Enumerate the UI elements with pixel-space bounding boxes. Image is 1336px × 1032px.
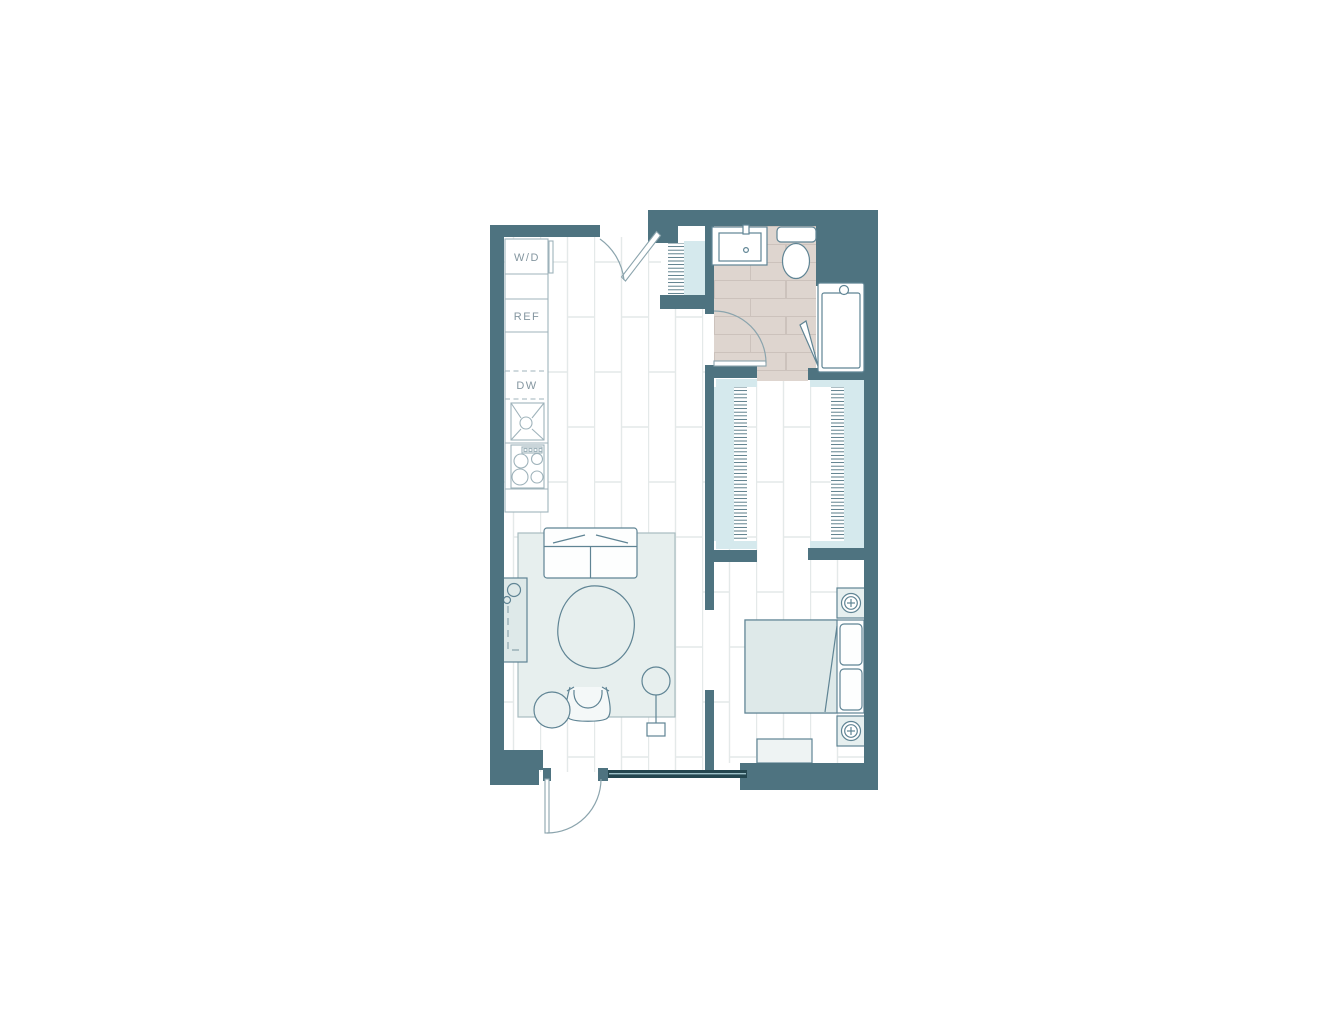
pillow xyxy=(840,669,862,710)
wall-closet-bottom-right xyxy=(808,548,864,560)
nightstand-top xyxy=(837,588,865,618)
closet-rod-left xyxy=(714,387,734,541)
entry-door-leaf xyxy=(545,779,549,833)
entry-door-swing-arc xyxy=(547,779,601,833)
toilet-bowl xyxy=(783,244,810,279)
sink-drain-icon xyxy=(520,417,532,429)
side-table xyxy=(534,692,570,728)
burner-icon xyxy=(532,454,543,465)
nightstand-bottom xyxy=(837,716,865,746)
floor-plan-canvas: W/D REF DW xyxy=(0,0,1336,1032)
media-console xyxy=(502,578,527,662)
window-band xyxy=(608,770,747,778)
window-glass-line xyxy=(609,773,746,774)
living-room xyxy=(502,528,675,736)
wall-top-right xyxy=(648,210,878,226)
refrigerator-label: REF xyxy=(514,311,541,323)
wall-corner-block xyxy=(490,750,543,770)
sofa xyxy=(544,528,637,578)
wall-bath-corner-block xyxy=(816,226,864,286)
closet-shelf xyxy=(716,379,757,387)
toilet-tank xyxy=(777,227,816,242)
entry-closet-hangers xyxy=(668,243,684,299)
kitchen: W/D REF DW xyxy=(505,239,553,512)
shower-drain-icon xyxy=(840,286,849,295)
entry-door xyxy=(545,779,601,833)
wall-entry-closet-bottom xyxy=(660,295,714,309)
burner-icon xyxy=(531,471,543,483)
entry-door-jamb-right xyxy=(598,768,608,781)
bathroom-closet-passage-floor xyxy=(757,365,808,381)
wall-right xyxy=(864,210,878,790)
wall-top-left xyxy=(490,225,600,237)
closet-hangers-right xyxy=(831,387,844,541)
wall-closet-post xyxy=(660,226,678,243)
washer-dryer-label: W/D xyxy=(514,252,540,264)
floor-lamp-base xyxy=(647,723,665,736)
kitchen-sink xyxy=(511,403,544,440)
closet-rod-right xyxy=(844,387,864,541)
dishwasher-label: DW xyxy=(516,380,537,392)
wall-closet-bottom-left xyxy=(713,550,757,562)
closet-shelf xyxy=(810,541,864,548)
entry-closet-rod xyxy=(684,241,705,299)
vanity-sink xyxy=(712,225,767,265)
bed xyxy=(745,620,864,713)
bathroom-door-leaf xyxy=(714,361,766,366)
wall-bedroom-bottom xyxy=(740,763,864,790)
pillow xyxy=(840,624,862,665)
wall-left xyxy=(490,225,504,765)
bed-blanket xyxy=(745,620,837,713)
dresser xyxy=(757,739,812,763)
burner-icon xyxy=(512,469,528,485)
closet-shelf xyxy=(810,380,864,387)
wall-bathroom-bottom-left xyxy=(705,365,757,378)
wall-spine-mid xyxy=(705,365,714,610)
washer-dryer-door xyxy=(549,241,553,273)
burner-icon xyxy=(514,454,528,468)
floor-plan-drawing: W/D REF DW xyxy=(0,0,1336,1032)
faucet-icon xyxy=(743,225,749,234)
cooktop xyxy=(511,445,544,488)
armchair xyxy=(566,687,610,721)
closet-shelf xyxy=(716,541,757,549)
wall-corner-block-lower xyxy=(490,768,539,785)
wall-spine-lower xyxy=(705,690,714,772)
closet-hangers-left xyxy=(734,387,747,541)
